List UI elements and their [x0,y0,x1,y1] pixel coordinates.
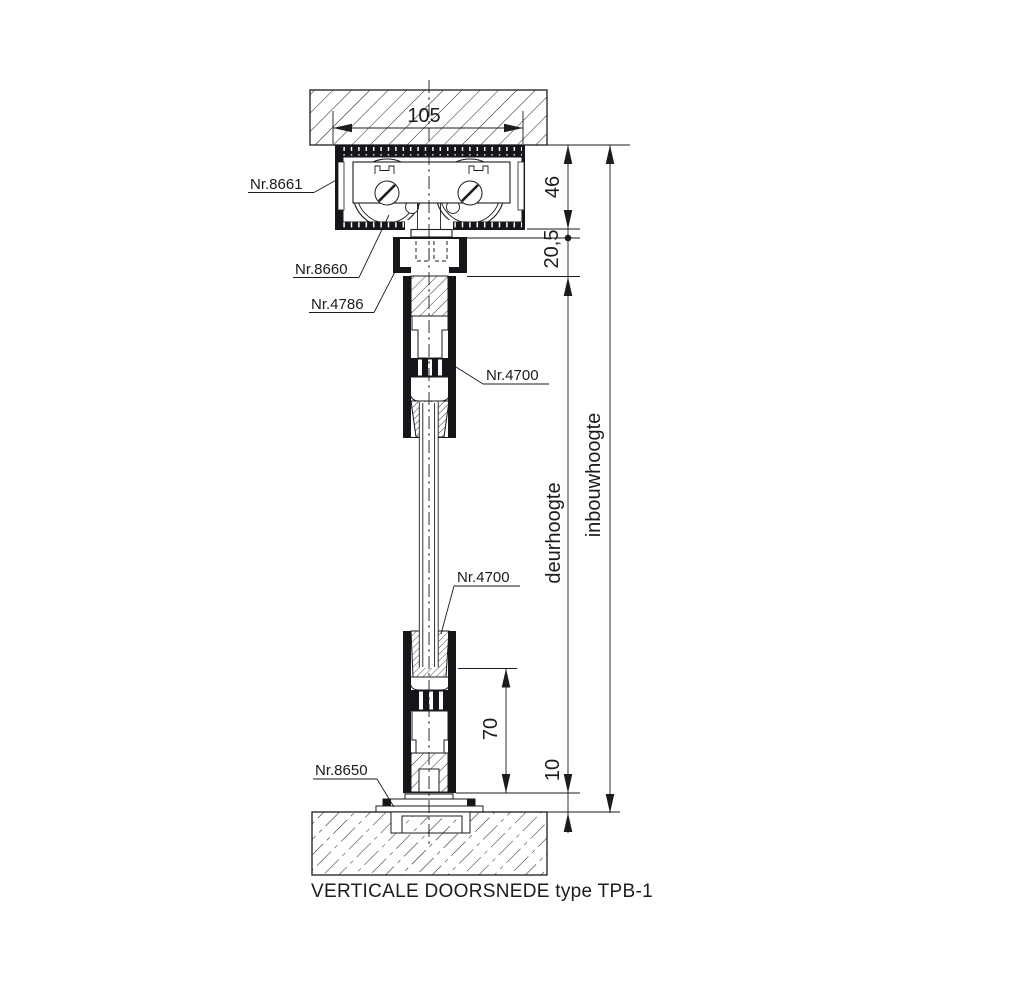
dim-floor-clearance: 10 [542,759,564,781]
glass-gasket-bottom [410,677,450,690]
dim-top-clearance: 20,5 [541,230,563,269]
drawing-caption: VERTICALE DOORSNEDE type TPB-1 [311,881,653,902]
installation-height-label: inbouwhoogte [583,413,605,538]
vertical-section-drawing: 105 46 20,5 70 10 deurhoogte inbouwhoogt… [0,0,1011,1000]
suspension-bracket [393,237,467,273]
rail-wood-infill-top [411,276,448,316]
hanger-plate [411,230,452,238]
track-fixing-strip-top [338,147,522,156]
dim-bottom-rail-inset: 70 [480,718,502,740]
label-top-track: Nr.8661 [250,176,303,193]
dim-track-height: 46 [542,176,564,198]
floor-section [312,812,547,875]
label-door-rail-bottom: Nr.4700 [457,569,510,586]
label-suspension-bracket: Nr.4786 [311,296,364,313]
dim-track-width: 105 [407,105,440,127]
glass-gasket-top [410,377,450,401]
top-track-assembly [335,145,525,237]
door-height-label: deurhoogte [543,482,565,583]
label-roller-trolley: Nr.8660 [295,261,348,278]
technical-drawing-page: 105 46 20,5 70 10 deurhoogte inbouwhoogt… [0,0,1011,1000]
label-door-rail-top: Nr.4700 [486,367,539,384]
label-floor-guide: Nr.8650 [315,762,368,779]
